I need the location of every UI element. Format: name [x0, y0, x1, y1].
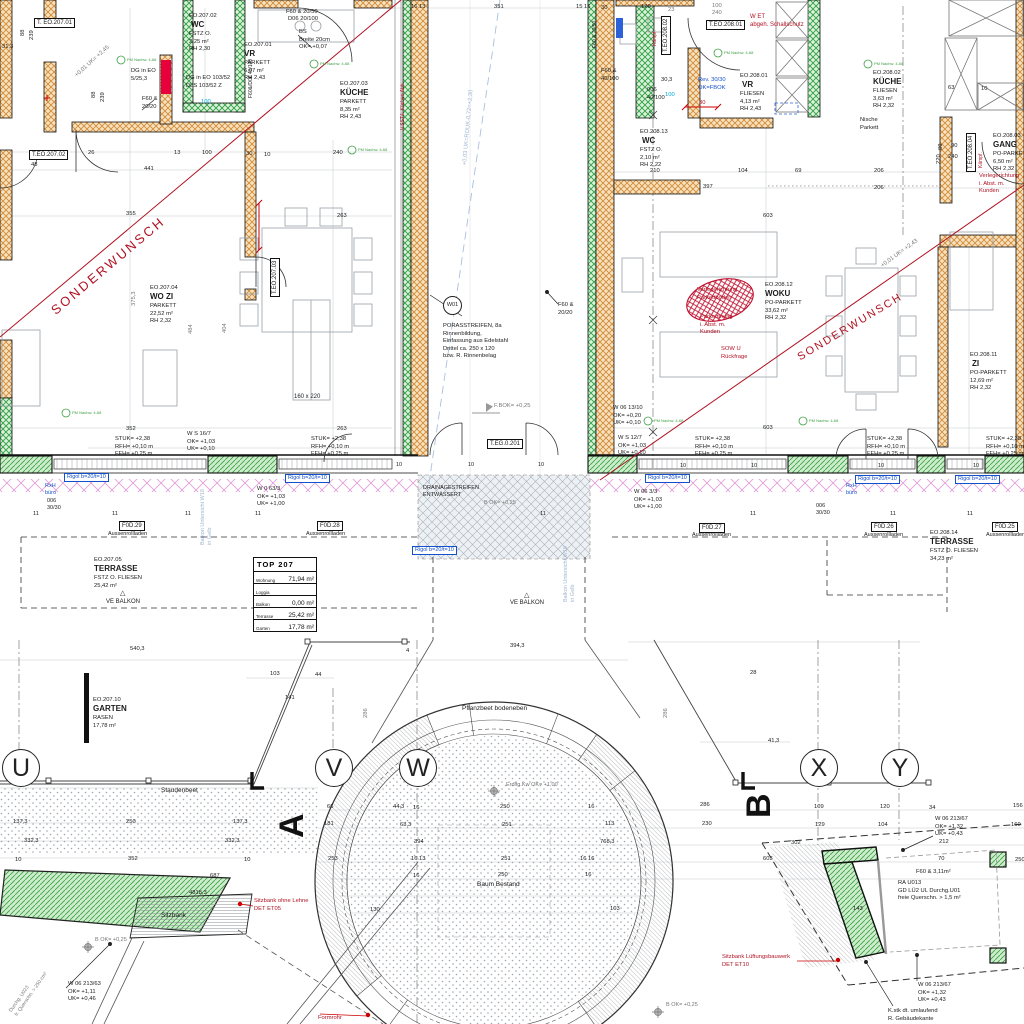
annotation-label: 137,3	[13, 819, 28, 827]
annotation-label: Aussenrollladen	[864, 532, 903, 539]
ref-tag: Rigol b=20/t=10	[855, 475, 900, 484]
annotation-label: Balkon Untersicht W18 in Gelb	[563, 546, 577, 602]
annotation-label: TERRASSE	[930, 537, 974, 547]
annotation-label: 484	[188, 324, 196, 334]
annotation-label: 332,3	[225, 838, 240, 846]
area-row-label: Balkon	[256, 602, 270, 607]
annotation-label: 34	[929, 805, 935, 813]
annotation-label: 10	[538, 462, 544, 469]
annotation-label: 160 x 220	[294, 394, 320, 402]
area-row-label: Terrasse	[256, 614, 273, 619]
annotation-label: FSTZ O. FLIESEN 34,23 m²	[930, 548, 978, 563]
annotation-label: Erdltg.Kw OK= +1,00	[506, 782, 558, 789]
annotation-label: RASEN 17,78 m²	[93, 715, 116, 730]
annotation-label: WOKU	[765, 289, 790, 299]
annotation-label: 253	[328, 856, 338, 864]
annotation-label: 30	[246, 151, 252, 159]
annotation-label: VR	[742, 80, 753, 90]
annotation-label: 240	[333, 150, 343, 158]
annotation-label: +0,01 UK= +2,43	[880, 238, 920, 270]
ref-tag: F0D.26	[871, 522, 897, 532]
annotation-label: 44,3	[393, 804, 404, 812]
ref-tag: T. EO.207.01	[34, 18, 75, 28]
annotation-label: 394	[414, 839, 424, 847]
annotation-label: 006 40/100	[647, 87, 665, 102]
annotation-label: Aussenrollladen	[692, 532, 731, 539]
annotation-label: W ET abgeh. Schallschutz	[750, 14, 804, 30]
annotation-label: W 06 13/10 OK= +0,20 UK= +0,10	[613, 405, 643, 428]
annotation-label: 230	[702, 821, 712, 829]
annotation-label: W S 16/7 OK= +1,03 UK= +0,10	[187, 431, 215, 454]
ref-tag: T.EO.208.02	[661, 16, 671, 55]
annotation-label: 212	[939, 839, 949, 847]
annotation-label: 10	[878, 463, 884, 470]
annotation-label: 397	[703, 184, 713, 192]
annotation-label: 239	[29, 30, 37, 40]
annotation-label: Balkon Untersicht W18 in Gelb	[200, 489, 214, 545]
annotation-label: 251	[501, 856, 511, 864]
annotations-layer: T. EO.207.01EO.207.01VRPARKETT 6,07 m² R…	[0, 0, 1024, 1024]
annotation-label: FLIESEN 3,63 m² RH 2,32	[873, 88, 897, 111]
ref-tag: T.EG.0.201	[487, 439, 523, 449]
annotation-label: 88	[91, 92, 99, 98]
annotation-label: 120	[880, 804, 890, 812]
annotation-label: 603	[763, 213, 773, 221]
annotation-label: 100	[202, 150, 212, 158]
annotation-label: 263	[337, 426, 347, 434]
annotation-label: W 06 213/67 OK= +1,32 UK= +0,43	[935, 816, 968, 839]
annotation-label: 63,3	[400, 822, 411, 830]
top-207-area-table: TOP 207 Wohnung71,94 m²LoggiaBalkon0,00 …	[253, 557, 317, 632]
annotation-label: △	[120, 589, 125, 598]
annotation-label: PARKETT 22,52 m² RH 2,32	[150, 303, 176, 326]
annotation-label: Durchg. U023 fr. Querschn. > 250 cm²	[8, 967, 49, 1017]
grid-axis-x: X	[800, 749, 838, 787]
annotation-label: 11	[967, 511, 973, 519]
annotation-label: 210	[650, 168, 660, 176]
annotation-label: SOW U Rückfrage	[721, 346, 747, 361]
annotation-label: 239	[100, 92, 108, 102]
annotation-label: Sitzbank	[161, 912, 186, 920]
annotation-label: 240	[712, 10, 722, 18]
annotation-label: W01	[443, 296, 462, 315]
annotation-label: 355	[126, 211, 136, 219]
annotation-label: 11	[540, 511, 546, 519]
annotation-label: 100	[201, 99, 211, 107]
annotation-label: 181	[324, 821, 334, 829]
annotation-label: RxH büro	[45, 483, 56, 497]
grid-axis-a: A	[275, 813, 309, 838]
area-row-value: 17,78 m²	[288, 624, 314, 631]
annotation-label: 16 16	[580, 856, 595, 864]
annotation-label: 11	[33, 511, 39, 519]
top-table-rows: Wohnung71,94 m²LoggiaBalkon0,00 m²Terras…	[254, 572, 316, 631]
annotation-label: 394,3	[510, 643, 525, 651]
annotation-label: 352	[126, 426, 136, 434]
annotation-label: 113	[605, 821, 614, 829]
floor-plan-canvas: T. EO.207.01EO.207.01VRPARKETT 6,07 m² R…	[0, 0, 1024, 1024]
annotation-label: 141	[285, 695, 295, 703]
annotation-label: PO-PARKETT 33,62 m² RH 2,32	[765, 300, 802, 323]
annotation-label: 263	[337, 213, 347, 221]
annotation-label: 603	[763, 856, 773, 864]
area-row-label: Loggia	[256, 590, 270, 595]
annotation-label: B OK= +0,25	[95, 937, 127, 944]
annotation-label: △	[524, 591, 529, 600]
ref-tag: T.EO.208.04	[966, 133, 976, 172]
annotation-label: W 06 3/3 OK= +1,03 UK= +1,00	[634, 489, 662, 512]
annotation-label: TERRASSE	[94, 564, 138, 574]
ref-tag: F0D.29	[119, 521, 145, 531]
annotation-label: 120	[641, 4, 651, 12]
annotation-label: 44	[315, 672, 321, 680]
annotation-label: Pflanzbeet bodeneben	[462, 705, 527, 713]
annotation-label: PARKETT 8,35 m² RH 2,43	[340, 99, 366, 122]
ref-tag: Rigol b=20/t=10	[955, 475, 1000, 484]
annotation-label: PM Nachw. 4-68	[127, 57, 156, 62]
annotation-label: 15 16	[576, 4, 591, 12]
grid-axis-w: W	[399, 749, 437, 787]
annotation-label: F60 & 20/20	[142, 96, 157, 111]
annotation-label: 11	[112, 511, 118, 519]
annotation-label: 11	[750, 511, 756, 519]
annotation-label: 10	[468, 462, 474, 469]
annotation-label: PM Nachw. 4-68	[874, 61, 903, 66]
annotation-label: 441	[144, 166, 154, 174]
annotation-label: 129	[815, 822, 825, 830]
annotation-label: PO-PARKETT 6,50 m² RH 2,32	[993, 151, 1024, 174]
top-table-title: TOP 207	[254, 558, 316, 572]
annotation-label: PM Nachw. 4-68	[358, 147, 387, 152]
annotation-label: GANG	[993, 140, 1017, 150]
annotation-label: 251	[502, 822, 512, 830]
annotation-label: 100	[665, 92, 675, 100]
annotation-label: 66	[327, 804, 333, 812]
annotation-label: +0,03 UK=ROUK-0,72=+2,30	[462, 90, 476, 166]
annotation-label: Aussenrollladen	[108, 531, 147, 538]
annotation-label: 10	[680, 463, 686, 470]
annotation-label: 88	[20, 30, 28, 36]
annotation-label: 160	[1011, 822, 1021, 830]
annotation-label: STUK= +2,38 RFH= +0,10 m FFH= +0,25 m	[311, 436, 349, 459]
annotation-label: 16 13	[411, 4, 426, 12]
annotation-label: 286	[363, 708, 371, 718]
annotation-label: 63	[948, 85, 954, 93]
annotation-label: 11	[890, 511, 896, 519]
annotation-label: PM Nachw. 4-68	[809, 418, 838, 423]
annotation-label: 41,3	[768, 738, 779, 746]
annotation-label: FLIESEN 4,13 m² RH 2,43	[740, 91, 764, 114]
annotation-label: STUK= +2,38 RFH= +0,10 m FFH= +0,25 m	[115, 436, 153, 459]
annotation-label: 10	[973, 463, 979, 470]
annotation-label: B OK= +0,25	[666, 1002, 698, 1009]
annotation-label: STUK= +2,38 RFH= +0,10 m FFH= +0,25 m	[986, 436, 1024, 459]
annotation-label: RxH büro	[846, 483, 857, 497]
annotation-label: DG in EO 103/52 DLS 103/52 Z	[186, 75, 230, 90]
annotation-label: 16	[413, 805, 419, 813]
annotation-label: F60 & 20/20	[558, 302, 573, 317]
annotation-label: 31,3	[2, 44, 13, 52]
annotation-label: PM Nachw. 4-68	[654, 418, 683, 423]
top-table-row: Garten17,78 m²	[254, 620, 316, 631]
annotation-label: BS Breite 20cm OK= +0,07	[299, 29, 330, 52]
annotation-label: 768,3	[600, 839, 615, 847]
annotation-label: ZI	[972, 359, 979, 369]
annotation-label: 143	[853, 906, 863, 914]
annotation-label: 30	[601, 5, 607, 13]
annotation-label: 006 30/30	[47, 498, 61, 512]
area-row-label: Garten	[256, 626, 270, 631]
annotation-label: F60 & 3,11m²	[916, 869, 951, 877]
annotation-label: 16	[588, 804, 594, 812]
annotation-label: 250	[500, 804, 510, 812]
annotation-label: 30,3	[661, 77, 672, 85]
top-table-row: Terrasse25,42 m²	[254, 608, 316, 620]
annotation-label: 130	[370, 907, 380, 915]
grid-axis-y: Y	[881, 749, 919, 787]
annotation-label: 302	[791, 840, 801, 848]
annotation-label: Sitzbank ohne Lehne DET ET05	[254, 898, 308, 913]
annotation-label: 104	[878, 822, 888, 830]
annotation-label: Kämpf.	[652, 30, 659, 46]
annotation-label: 332,3	[24, 838, 39, 846]
annotation-label: SONDERWUNSCH	[795, 290, 906, 364]
area-row-value: 25,42 m²	[288, 612, 314, 619]
annotation-label: 687	[210, 873, 220, 881]
top-table-row: Balkon0,00 m²	[254, 596, 316, 608]
annotation-label: 16 13	[411, 856, 426, 864]
annotation-label: 137,3	[233, 819, 248, 827]
annotation-label: Kämpf.	[978, 152, 985, 168]
annotation-label: 603	[763, 425, 773, 433]
annotation-label: 4	[406, 648, 409, 656]
annotation-label: FSTZ O. 2,25 m² RH 2,30	[189, 31, 211, 54]
ref-tag: Rigol b=20/t=10	[285, 474, 330, 483]
grid-axis-b: B	[742, 793, 776, 818]
annotation-label: 240	[948, 154, 958, 162]
annotation-label: Sitzbank Lüftungsbauwerk DET ET10	[722, 954, 790, 969]
annotation-label: STUK= +2,38 RFH= +0,10 m FFH= +0,25 m	[695, 436, 733, 459]
annotation-label: W S 12/7 OK= +1,03 UK= +0,10	[618, 435, 646, 458]
ref-tag: F0D.28	[317, 521, 343, 531]
annotation-label: 250	[126, 819, 136, 827]
annotation-label: DRAINAGESTREIFEN ENTWÄSSERT	[423, 485, 479, 499]
annotation-label: 156	[1013, 803, 1023, 811]
area-row-value: 0,00 m²	[292, 600, 314, 607]
annotation-label: B OK= +0,25	[484, 500, 516, 507]
annotation-label: WC	[642, 136, 655, 146]
annotation-label: 286	[663, 708, 671, 718]
ref-tag: Rigol b=20/t=10	[412, 546, 457, 555]
annotation-label: 16	[585, 872, 591, 880]
annotation-label: 206	[874, 168, 884, 176]
annotation-label: WO ZI	[150, 292, 173, 302]
annotation-label: 23	[668, 7, 674, 15]
annotation-label: FSTZ O. FLIESEN 25,42 m²	[94, 575, 142, 590]
annotation-label: 10	[15, 857, 21, 865]
ref-tag: T.EO.207.03	[270, 258, 280, 297]
annotation-label: Verlegerichtung Parkettboden	[697, 287, 737, 302]
annotation-label: KÜCHE	[340, 88, 368, 98]
annotation-label: F60&/D06 40/100	[248, 59, 255, 98]
annotation-label: STUK= +2,38 RFH= +0,10 m FFH= +0,25 m	[867, 436, 905, 459]
annotation-label: F60 & 20/50	[592, 21, 599, 48]
top-table-row: Loggia	[254, 584, 316, 596]
grid-axis-u: U	[2, 749, 40, 787]
annotation-label: F60 & 40/100	[601, 68, 619, 83]
annotation-label: PORASSTREIFEN, 8a Rinnenbildung, Einfass…	[443, 323, 508, 361]
grid-axis-v: V	[315, 749, 353, 787]
annotation-label: 220	[936, 154, 944, 164]
annotation-label: 4818,3	[189, 890, 207, 898]
annotation-label: 11	[255, 511, 261, 519]
annotation-label: 10	[981, 86, 987, 94]
annotation-label: Baum Bestand	[477, 881, 520, 889]
annotation-label: 103	[270, 671, 280, 679]
ref-tag: T.EO.207.02	[29, 150, 68, 160]
ref-tag: F0D.25	[992, 522, 1018, 532]
annotation-label: 70	[938, 856, 944, 864]
ref-tag: Rigol b=20/t=10	[645, 474, 690, 483]
annotation-label: 26	[88, 150, 94, 158]
annotation-label: 250	[1015, 857, 1024, 865]
annotation-label: 90	[951, 143, 957, 151]
annotation-label: 80	[938, 144, 946, 150]
annotation-label: 109	[814, 804, 824, 812]
annotation-label: 10	[751, 463, 757, 470]
annotation-label: PM Nachw. 4-68	[72, 410, 101, 415]
annotation-label: D06 20/100	[288, 16, 318, 24]
annotation-label: 351	[494, 4, 504, 12]
annotation-label: 103	[610, 906, 620, 914]
annotation-label: W 06 213/67 OK= +1,32 UK= +0,43	[918, 982, 951, 1005]
annotation-label: K.stk dt. umlaufend R. Gebäudekante	[888, 1008, 938, 1023]
top-table-row: Wohnung71,94 m²	[254, 572, 316, 584]
annotation-label: 16	[413, 873, 419, 881]
annotation-label: 10	[396, 462, 402, 469]
annotation-label: 69	[795, 168, 801, 176]
annotation-label: 30	[699, 100, 705, 108]
annotation-label: KÜCHE	[873, 77, 901, 87]
annotation-label: 352	[128, 856, 138, 864]
annotation-label: W 06 213/63 OK= +1,11 UK= +0,46	[68, 981, 101, 1004]
annotation-label: +0,01 UK= +2,45	[74, 45, 112, 80]
annotation-label: RA U013 GD LÜ2 UL Durchg.U01 freie Quers…	[898, 880, 961, 903]
annotation-label: Formrohr	[318, 1015, 342, 1023]
ref-tag: Rigol b=20/t=10	[64, 473, 109, 482]
annotation-label: Aussenrollladen	[986, 532, 1024, 539]
annotation-label: 10	[244, 857, 250, 865]
annotation-label: Rev. 30/30 OK=FBOK	[698, 77, 726, 92]
annotation-label: 286	[700, 802, 710, 810]
area-row-label: Wohnung	[256, 578, 275, 583]
annotation-label: Parkettbelag i. Abst. m. Kunden	[700, 314, 733, 337]
annotation-label: 48	[31, 162, 37, 170]
annotation-label: DG in EO 5/25,3	[131, 68, 156, 83]
ref-tag: T.EO.208.01	[706, 20, 745, 30]
annotation-label: 206	[874, 185, 884, 193]
annotation-label: V.SST4: Küchen Abh.	[400, 82, 407, 130]
annotation-label: F.BOK= +0,25	[494, 403, 530, 411]
annotation-label: W 0 63/3 OK= +1,03 UK= +1,00	[257, 486, 285, 509]
annotation-label: Nische Parkett	[860, 117, 878, 132]
annotation-label: WC	[191, 20, 204, 30]
annotation-label: PM Nachw. 4-68	[320, 61, 349, 66]
annotation-label: Verlegerichtung i. Abst. m. Kunden	[979, 173, 1019, 196]
annotation-label: VE BALKON	[510, 600, 544, 608]
annotation-label: 250	[498, 872, 508, 880]
annotation-label: PO-PARKETT 12,69 m² RH 2,32	[970, 370, 1007, 393]
annotation-label: Staudenbeet	[161, 787, 198, 795]
annotation-label: 28	[750, 670, 756, 678]
annotation-label: VE BALKON	[106, 599, 140, 607]
annotation-label: 11	[185, 511, 191, 519]
annotation-label: Aussenrollladen	[306, 531, 345, 538]
annotation-label: PM Nachw. 4-68	[724, 50, 753, 55]
annotation-label: 006 30/30	[816, 503, 830, 517]
annotation-label: 540,3	[130, 646, 145, 654]
annotation-label: 375,3	[131, 291, 139, 306]
annotation-label: 104	[738, 168, 748, 176]
annotation-label: 10	[264, 152, 270, 160]
annotation-label: 404	[222, 323, 230, 333]
annotation-label: GARTEN	[93, 704, 127, 714]
area-row-value: 71,94 m²	[288, 576, 314, 583]
annotation-label: 13	[174, 150, 180, 158]
annotation-label: FSTZ O. 2,10 m² RH 2,22	[640, 147, 662, 170]
